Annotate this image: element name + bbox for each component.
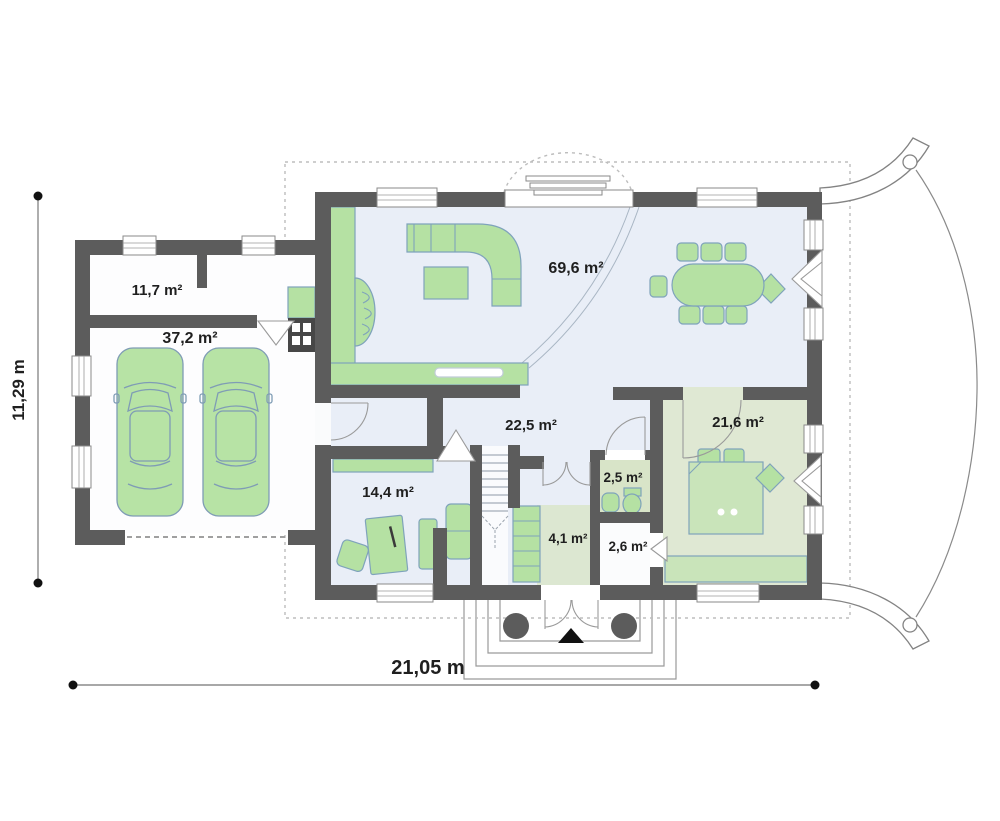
kitchen-cabinet xyxy=(288,287,315,318)
desk xyxy=(365,515,408,575)
label-study: 14,4 m² xyxy=(362,484,414,501)
label-hall: 22,5 m² xyxy=(505,417,557,434)
entrance-arrow-icon xyxy=(558,628,584,643)
label-garage: 37,2 m² xyxy=(162,330,217,347)
label-vestibule: 4,1 m² xyxy=(548,531,588,546)
label-storage: 2,6 m² xyxy=(608,539,648,554)
height-dimension-label: 11,29 m xyxy=(9,359,28,420)
entrance-double-door xyxy=(545,600,598,629)
staircase xyxy=(482,446,508,585)
label-living: 69,6 m² xyxy=(548,260,603,277)
label-wc: 2,5 m² xyxy=(603,470,643,485)
floor-plan-page: 11,7 m² 37,2 m² 69,6 m² 22,5 m² 21,6 m² … xyxy=(0,0,1000,821)
side-pergola-wings xyxy=(820,138,977,649)
small-couch xyxy=(446,504,472,559)
dimension-width: 21,05 m xyxy=(69,657,820,690)
floor-plan-canvas: 11,7 m² 37,2 m² 69,6 m² 22,5 m² 21,6 m² … xyxy=(0,0,1000,821)
label-utility: 11,7 m² xyxy=(132,282,183,299)
vestibule-wardrobe xyxy=(513,506,540,582)
coffee-table xyxy=(424,267,468,299)
car xyxy=(114,348,186,516)
label-bedroom: 21,6 m² xyxy=(712,414,764,431)
porch-column xyxy=(503,613,529,639)
car xyxy=(200,348,272,516)
bedroom-wardrobe xyxy=(665,556,807,582)
dimension-height: 11,29 m xyxy=(9,192,43,588)
width-dimension-label: 21,05 m xyxy=(391,657,464,679)
porch-column xyxy=(611,613,637,639)
study-shelf xyxy=(333,459,433,472)
bed xyxy=(689,449,763,534)
